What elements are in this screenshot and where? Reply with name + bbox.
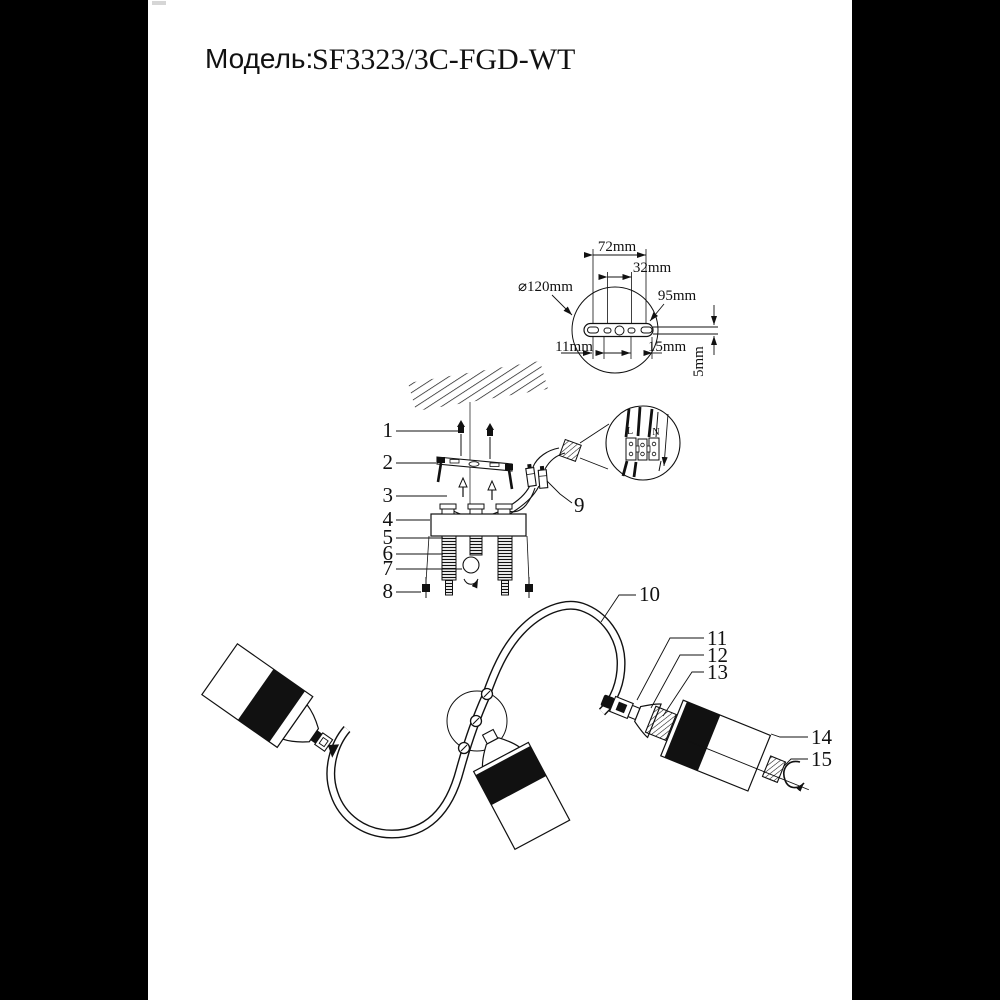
part-label-10: 10 bbox=[639, 582, 660, 606]
lock-nuts bbox=[440, 504, 512, 514]
title: Модель: SF3323/3C-FGD-WT bbox=[205, 43, 575, 76]
dim-72: 72mm bbox=[598, 239, 637, 255]
terminal-label-neutral: N bbox=[652, 427, 659, 438]
part-label-15: 15 bbox=[811, 747, 832, 771]
terminal-block bbox=[626, 438, 659, 460]
part-label-14: 14 bbox=[811, 725, 833, 749]
part-label-1: 1 bbox=[383, 418, 394, 442]
page-title-label: Модель: bbox=[205, 43, 313, 74]
part-label-3: 3 bbox=[383, 483, 394, 507]
manual-page: Модель: SF3323/3C-FGD-WT 72mm 32mm ⌀120m… bbox=[0, 0, 1000, 1000]
threaded-stub-center bbox=[470, 536, 482, 555]
dim-95: 95mm bbox=[658, 288, 697, 304]
dim-5: 5mm bbox=[691, 346, 707, 377]
screenshot-stage: Модель: SF3323/3C-FGD-WT 72mm 32mm ⌀120m… bbox=[0, 0, 1000, 1000]
part-label-8: 8 bbox=[383, 579, 394, 603]
dim-15: 15mm bbox=[648, 339, 687, 355]
dim-11: 11mm bbox=[555, 339, 593, 355]
scan-artifact bbox=[152, 1, 166, 5]
canopy-plate bbox=[431, 504, 526, 536]
part-label-9: 9 bbox=[574, 493, 585, 517]
mounting-bar bbox=[584, 324, 653, 337]
terminal-label-live: L bbox=[627, 426, 633, 437]
dim-32: 32mm bbox=[633, 260, 672, 276]
part-label-13: 13 bbox=[707, 660, 728, 684]
dim-diameter: ⌀120mm bbox=[518, 279, 573, 295]
paper-sheet bbox=[148, 0, 852, 1000]
part-label-7: 7 bbox=[383, 556, 394, 580]
model-number: SF3323/3C-FGD-WT bbox=[312, 43, 575, 76]
terminal-detail-circle: L N bbox=[606, 406, 680, 480]
part-label-2: 2 bbox=[383, 450, 394, 474]
